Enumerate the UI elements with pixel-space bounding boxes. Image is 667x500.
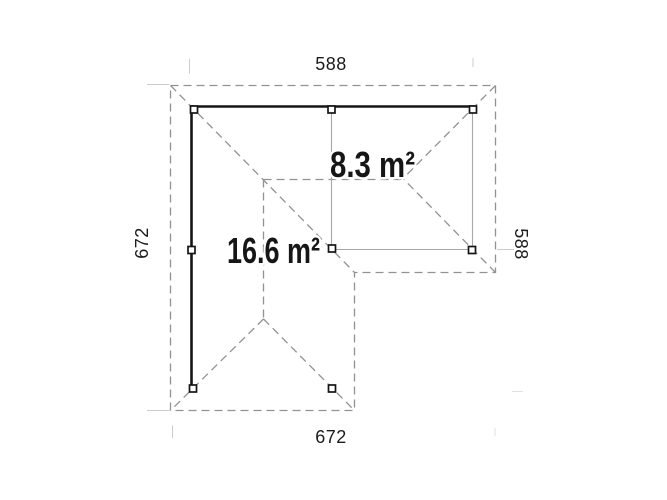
area-label-annex: 8.3 m² (330, 144, 415, 185)
dimension-top: 588 (315, 54, 347, 74)
roof-hip-sw-diagonal (171, 319, 264, 411)
post-top-center (328, 106, 335, 113)
post-sw (190, 385, 197, 392)
dimension-right: 588 (511, 228, 531, 260)
floor-plan-stage: 16.6 m² 8.3 m² 588 672 672 588 (0, 0, 667, 500)
post-bottom-center (329, 385, 336, 392)
post-right-middle (469, 247, 476, 254)
roof-hip-ne-diagonal (403, 86, 496, 179)
post-nw (191, 106, 198, 113)
area-label-main: 16.6 m² (227, 230, 320, 271)
roof-hip-se-diagonal (403, 179, 496, 273)
post-ne (470, 106, 477, 113)
post-left-middle (188, 247, 195, 254)
floor-plan-drawing: 16.6 m² 8.3 m² 588 672 672 588 (0, 0, 667, 500)
dimension-left: 672 (132, 227, 152, 259)
dimension-bottom: 672 (315, 427, 347, 447)
post-inner-corner (329, 245, 336, 252)
roof-hip-s-diagonal (264, 319, 355, 411)
